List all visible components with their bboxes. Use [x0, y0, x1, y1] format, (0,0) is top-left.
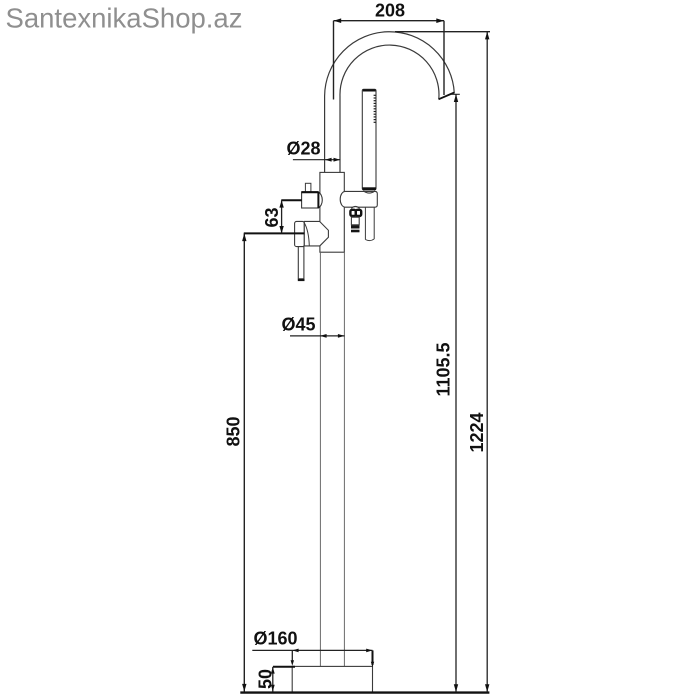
svg-text:Ø45: Ø45	[282, 315, 316, 335]
svg-text:1105.5: 1105.5	[434, 342, 454, 396]
svg-text:SantexnikaShop.az: SantexnikaShop.az	[6, 2, 243, 33]
svg-text:208: 208	[375, 1, 405, 21]
svg-text:63: 63	[262, 207, 282, 227]
svg-text:1224: 1224	[467, 412, 487, 452]
svg-text:Ø160: Ø160	[254, 629, 298, 649]
svg-text:850: 850	[224, 416, 244, 446]
svg-text:50: 50	[255, 669, 275, 689]
svg-text:Ø28: Ø28	[287, 139, 321, 159]
